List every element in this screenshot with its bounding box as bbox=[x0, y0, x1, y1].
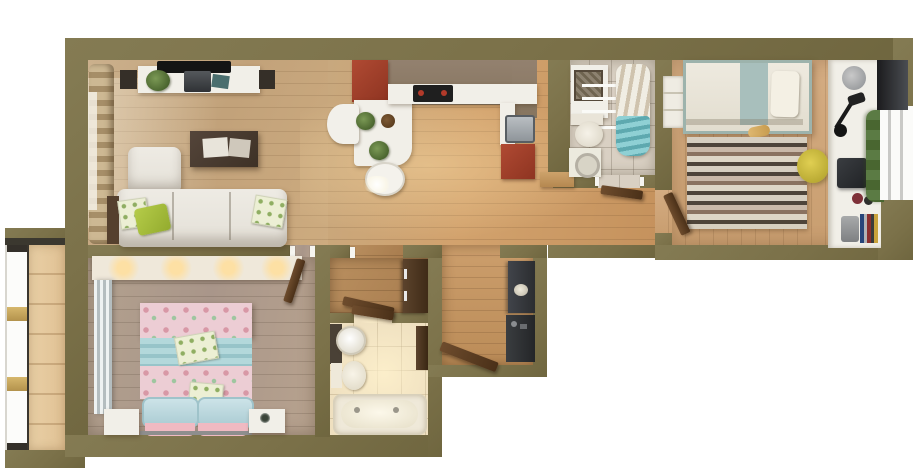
wall-bathroom-bottom-right bbox=[428, 258, 442, 457]
bath-top-door-jamb-1 bbox=[595, 177, 599, 186]
desk-metal-object bbox=[842, 66, 866, 90]
desk-books bbox=[860, 214, 878, 243]
kitchen-pinecone-decor bbox=[381, 114, 395, 128]
yellow-stool bbox=[797, 149, 829, 183]
entry-decor-bowl bbox=[514, 284, 528, 296]
wall-stub-closet-right bbox=[403, 245, 442, 258]
speaker-left bbox=[120, 70, 137, 89]
kitchen-red-cabinet-upper bbox=[352, 60, 388, 102]
balcony-window-band bbox=[5, 245, 31, 450]
sofa-seam-1 bbox=[172, 192, 174, 240]
kitchen-bar-chair bbox=[327, 104, 359, 144]
bath-top-toilet-bowl bbox=[575, 122, 603, 147]
bath-bottom-toilet-tank bbox=[331, 363, 342, 388]
bed-headboard-strip bbox=[140, 431, 252, 435]
cooktop-burner-2 bbox=[441, 90, 447, 96]
wall-tv-panel bbox=[877, 60, 908, 110]
bed-fold-shadow bbox=[686, 119, 803, 125]
teal-towels bbox=[616, 116, 650, 156]
wall-right-corner-block bbox=[878, 198, 913, 260]
bath-bottom-wall-shelf bbox=[416, 326, 428, 370]
speaker-right bbox=[259, 70, 275, 89]
bathtub-basin bbox=[341, 400, 418, 428]
outer-wall-bottom-main bbox=[65, 435, 442, 457]
striped-rug bbox=[687, 137, 807, 229]
magazine-2 bbox=[228, 138, 251, 158]
closet-cabinet bbox=[403, 259, 428, 313]
kitchen-plant-2 bbox=[369, 141, 389, 160]
alarm-clock bbox=[260, 413, 270, 423]
desk-monitor bbox=[837, 158, 867, 188]
outer-wall-top bbox=[65, 38, 913, 60]
wall-closet-top-stub bbox=[330, 245, 350, 258]
bath-top-door-jamb-2 bbox=[640, 177, 644, 186]
closet-cabinet-handle-2 bbox=[404, 291, 407, 301]
window-frame-line-2 bbox=[900, 106, 903, 200]
sofa-chaise bbox=[128, 147, 181, 194]
mirror-curtain-strip bbox=[94, 280, 112, 414]
magazine-1 bbox=[202, 137, 228, 158]
sofa-seam-2 bbox=[229, 192, 231, 240]
washing-machine bbox=[569, 148, 601, 177]
kitchen-counter-top-run bbox=[388, 84, 537, 104]
laptop bbox=[184, 71, 211, 92]
bathtub-faucet-2 bbox=[393, 407, 399, 413]
kitchen-sink bbox=[505, 115, 535, 143]
cushion-pattern-right bbox=[251, 194, 288, 228]
floor-plan-render bbox=[0, 0, 920, 472]
balcony-floor bbox=[29, 245, 65, 450]
desk-printer bbox=[841, 216, 859, 242]
outer-wall-left bbox=[65, 60, 88, 457]
bedroom-right-bed bbox=[683, 60, 812, 134]
cooktop-burner-1 bbox=[418, 90, 424, 96]
closet-cabinet-handle-1 bbox=[404, 269, 407, 279]
bathtub bbox=[333, 394, 427, 435]
ceiling-lamp-reflection bbox=[362, 176, 392, 193]
wall-entry-hall-top-stub bbox=[500, 245, 547, 258]
kitchen-red-cabinet-lower bbox=[501, 144, 535, 179]
wall-bedroom-closet-vertical bbox=[315, 245, 330, 437]
kitchen-plant-1 bbox=[356, 112, 375, 130]
bathtub-faucet-1 bbox=[354, 407, 360, 413]
bath-bottom-toilet-bowl bbox=[342, 361, 366, 390]
wall-entry-hall-right bbox=[533, 245, 547, 377]
entry-console-item-1 bbox=[511, 321, 517, 327]
wall-closet-bath-left bbox=[330, 313, 354, 323]
tv-plant bbox=[146, 70, 170, 91]
closet-door-jamb bbox=[350, 247, 355, 258]
cooktop bbox=[413, 85, 453, 102]
wall-hall-bottom-center bbox=[548, 245, 655, 258]
bedroom-right-window bbox=[880, 106, 913, 200]
entry-console-upper bbox=[508, 261, 535, 313]
bed-pillow bbox=[770, 71, 800, 118]
nightstand-left bbox=[104, 409, 139, 435]
desk-lamp-base bbox=[834, 124, 847, 137]
bed-teal-runner bbox=[740, 63, 768, 125]
bath-bottom-round-sink bbox=[336, 326, 366, 355]
washing-machine-door bbox=[575, 153, 600, 178]
desk-cup-red bbox=[852, 193, 863, 204]
entry-console-lower bbox=[506, 315, 535, 362]
window-frame-line-1 bbox=[888, 106, 891, 200]
closet-door-opening bbox=[350, 245, 403, 258]
entry-console-item-2 bbox=[520, 324, 527, 329]
built-in-wardrobe bbox=[92, 256, 302, 280]
blue-book bbox=[211, 74, 230, 89]
living-window-sill bbox=[88, 92, 97, 210]
wall-kitchen-bathroom-vertical bbox=[548, 60, 570, 175]
